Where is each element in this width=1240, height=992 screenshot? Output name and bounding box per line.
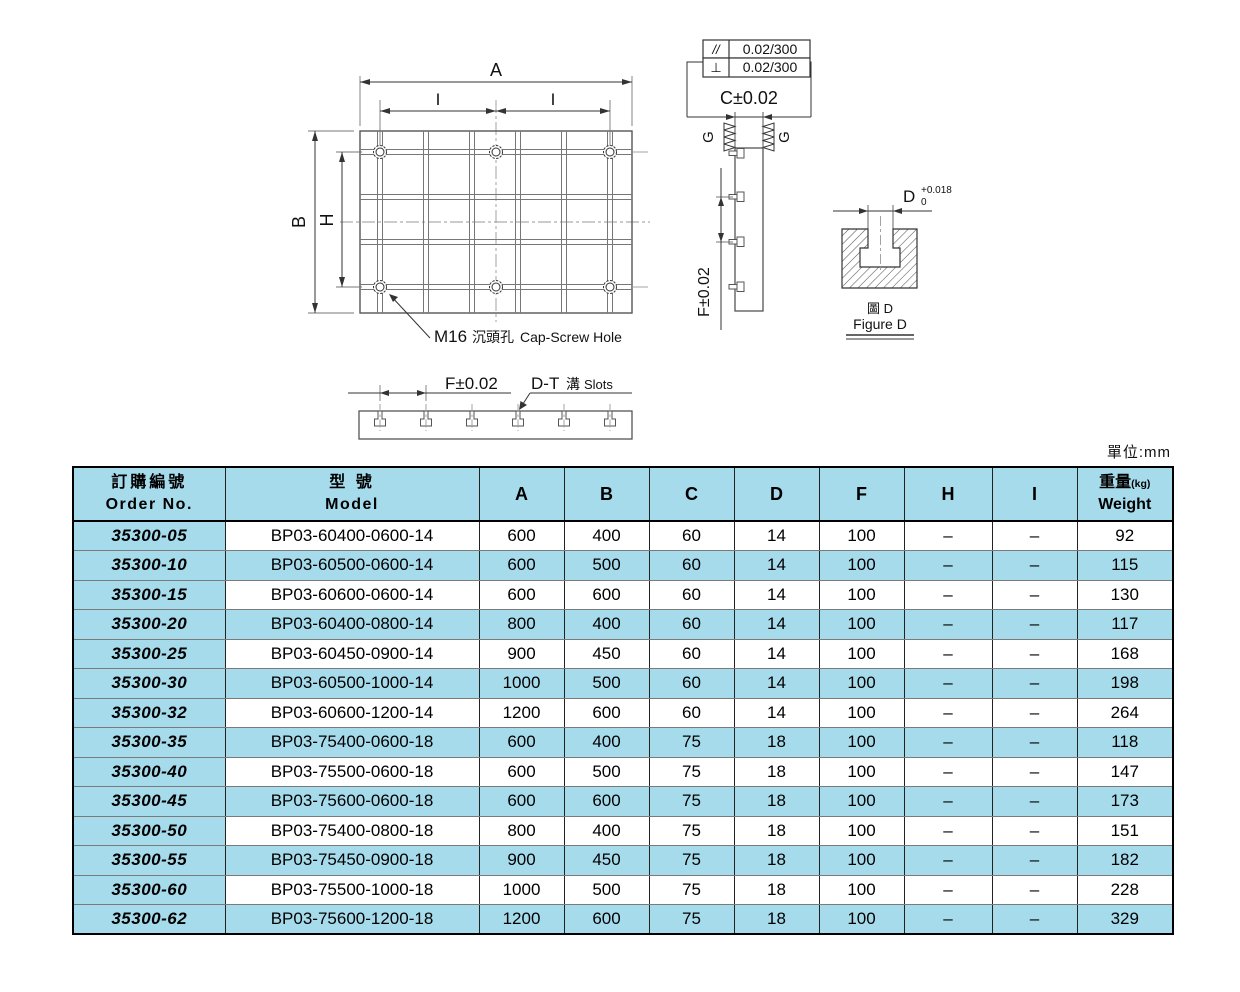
dim-f-cell: 100 <box>819 580 904 610</box>
dim-d-cell: 14 <box>734 580 819 610</box>
dim-d-tol-upper: +0.018 <box>921 185 952 196</box>
cap-screw-holes <box>374 146 617 294</box>
dim-f-cell: 100 <box>819 846 904 876</box>
header-model-cjk: 型 號 <box>226 472 479 494</box>
dim-a-cell: 800 <box>479 816 564 846</box>
header-dim-f: F <box>819 467 904 521</box>
dim-b-cell: 400 <box>564 816 649 846</box>
dim-i-cell: – <box>992 580 1077 610</box>
weight-cell: 117 <box>1077 610 1173 640</box>
dim-f-cell: 100 <box>819 639 904 669</box>
model-cell: BP03-60500-1000-14 <box>225 669 479 699</box>
dim-b-cell: 450 <box>564 639 649 669</box>
dim-c-cell: 75 <box>649 728 734 758</box>
table-row: 35300-10BP03-60500-0600-146005006014100–… <box>73 551 1173 581</box>
perpendicularity-value: 0.02/300 <box>743 59 798 75</box>
figure-d-caption-cjk: 圖 D <box>867 301 893 316</box>
dim-f-cell: 100 <box>819 728 904 758</box>
header-dim-i: I <box>992 467 1077 521</box>
header-dim-a: A <box>479 467 564 521</box>
model-cell: BP03-60400-0800-14 <box>225 610 479 640</box>
order-no-cell: 35300-55 <box>73 846 225 876</box>
order-no-cell: 35300-50 <box>73 816 225 846</box>
header-row: 訂購編號 Order No. 型 號 Model A B C D F H I <box>73 467 1173 521</box>
model-cell: BP03-75400-0800-18 <box>225 816 479 846</box>
dim-d-cell: 14 <box>734 669 819 699</box>
table-row: 35300-20BP03-60400-0800-148004006014100–… <box>73 610 1173 640</box>
dim-i-cell: – <box>992 875 1077 905</box>
table-row: 35300-45BP03-75600-0600-186006007518100–… <box>73 787 1173 817</box>
dim-c-cell: 60 <box>649 580 734 610</box>
dim-d-cell: 18 <box>734 905 819 935</box>
edge-slot-profiles <box>729 149 744 292</box>
header-model-en: Model <box>226 494 479 516</box>
weight-cell: 130 <box>1077 580 1173 610</box>
dim-b-cell: 500 <box>564 551 649 581</box>
dim-h-cell: – <box>904 521 992 551</box>
dim-b-cell: 600 <box>564 787 649 817</box>
table-row: 35300-60BP03-75500-1000-1810005007518100… <box>73 875 1173 905</box>
dim-b-cell: 600 <box>564 580 649 610</box>
dim-b-cell: 400 <box>564 521 649 551</box>
dim-c-cell: 75 <box>649 875 734 905</box>
dim-f-cell: 100 <box>819 757 904 787</box>
dim-f-cell: 100 <box>819 816 904 846</box>
model-cell: BP03-75450-0900-18 <box>225 846 479 876</box>
dim-i1-label: I <box>436 90 441 109</box>
dim-i-cell: – <box>992 669 1077 699</box>
dim-i-cell: – <box>992 757 1077 787</box>
dim-i-cell: – <box>992 787 1077 817</box>
order-no-cell: 35300-10 <box>73 551 225 581</box>
order-no-cell: 35300-40 <box>73 757 225 787</box>
section-view-drawing: F±0.02 D-T 溝 Slots <box>348 374 632 439</box>
dim-i2-label: I <box>551 90 556 109</box>
model-cell: BP03-60600-0600-14 <box>225 580 479 610</box>
dim-c-label: C±0.02 <box>720 88 778 108</box>
weight-cell: 198 <box>1077 669 1173 699</box>
table-row: 35300-05BP03-60400-0600-146004006014100–… <box>73 521 1173 551</box>
order-no-cell: 35300-35 <box>73 728 225 758</box>
header-dim-b: B <box>564 467 649 521</box>
dim-a-cell: 600 <box>479 521 564 551</box>
table-row: 35300-55BP03-75450-0900-189004507518100–… <box>73 846 1173 876</box>
dim-i-cell: – <box>992 551 1077 581</box>
order-no-cell: 35300-62 <box>73 905 225 935</box>
dim-a-cell: 1000 <box>479 875 564 905</box>
dim-a-cell: 600 <box>479 551 564 581</box>
dim-b-cell: 600 <box>564 905 649 935</box>
dim-f-cell: 100 <box>819 875 904 905</box>
dim-c-cell: 75 <box>649 816 734 846</box>
table-row: 35300-40BP03-75500-0600-186005007518100–… <box>73 757 1173 787</box>
dim-h-cell: – <box>904 580 992 610</box>
dim-i-cell: – <box>992 521 1077 551</box>
dim-d-tol-lower: 0 <box>921 197 927 208</box>
dim-h-cell: – <box>904 846 992 876</box>
weight-cell: 92 <box>1077 521 1173 551</box>
table-row: 35300-30BP03-60500-1000-1410005006014100… <box>73 669 1173 699</box>
dim-c-cell: 75 <box>649 787 734 817</box>
dim-d-cell: 14 <box>734 610 819 640</box>
table-row: 35300-25BP03-60450-0900-149004506014100–… <box>73 639 1173 669</box>
weight-cell: 329 <box>1077 905 1173 935</box>
dim-b-cell: 600 <box>564 698 649 728</box>
dim-d-cell: 18 <box>734 846 819 876</box>
dim-f-cell: 100 <box>819 787 904 817</box>
dim-h-label: H <box>317 214 337 227</box>
t-slot-cross-section <box>842 229 917 288</box>
dim-i-cell: – <box>992 846 1077 876</box>
dim-d-cell: 18 <box>734 787 819 817</box>
order-no-cell: 35300-60 <box>73 875 225 905</box>
parallelism-value: 0.02/300 <box>743 41 798 57</box>
dim-h-cell: – <box>904 551 992 581</box>
order-no-cell: 35300-20 <box>73 610 225 640</box>
dim-d-cell: 18 <box>734 728 819 758</box>
slots-note-en: Slots <box>584 377 613 392</box>
header-order-no-en: Order No. <box>74 494 225 516</box>
dim-h-cell: – <box>904 875 992 905</box>
dim-a-cell: 900 <box>479 846 564 876</box>
dim-f-cell: 100 <box>819 669 904 699</box>
section-slots <box>375 411 616 426</box>
header-model: 型 號 Model <box>225 467 479 521</box>
dim-b-cell: 500 <box>564 669 649 699</box>
dim-a-cell: 600 <box>479 728 564 758</box>
weight-cell: 182 <box>1077 846 1173 876</box>
weight-cell: 151 <box>1077 816 1173 846</box>
model-cell: BP03-75500-0600-18 <box>225 757 479 787</box>
table-row: 35300-15BP03-60600-0600-146006006014100–… <box>73 580 1173 610</box>
parallelism-symbol: // <box>711 42 721 57</box>
dim-b-cell: 500 <box>564 757 649 787</box>
dim-c-cell: 60 <box>649 698 734 728</box>
dim-b-cell: 400 <box>564 610 649 640</box>
dim-d-cell: 14 <box>734 521 819 551</box>
weight-cell: 115 <box>1077 551 1173 581</box>
dim-h-cell: – <box>904 639 992 669</box>
dim-d-cell: 14 <box>734 698 819 728</box>
model-cell: BP03-75500-1000-18 <box>225 875 479 905</box>
weight-cell: 264 <box>1077 698 1173 728</box>
dim-a-cell: 1000 <box>479 669 564 699</box>
dim-i-cell: – <box>992 816 1077 846</box>
dim-a-cell: 600 <box>479 757 564 787</box>
dim-b-cell: 400 <box>564 728 649 758</box>
dim-f-section-label: F±0.02 <box>445 374 498 393</box>
figure-d-caption-en: Figure D <box>853 316 907 332</box>
order-no-cell: 35300-45 <box>73 787 225 817</box>
perpendicularity-symbol: ⊥ <box>710 60 721 75</box>
model-cell: BP03-60600-1200-14 <box>225 698 479 728</box>
units-label: 單位:mm <box>1040 441 1171 462</box>
dim-f-cell: 100 <box>819 551 904 581</box>
hole-note-en: Cap-Screw Hole <box>520 329 622 345</box>
model-cell: BP03-75600-0600-18 <box>225 787 479 817</box>
header-dim-h: H <box>904 467 992 521</box>
dim-h-cell: – <box>904 905 992 935</box>
dim-d-cell: 18 <box>734 816 819 846</box>
dim-f-cell: 100 <box>819 610 904 640</box>
figure-d-drawing: D +0.018 0 圖 D Figure D <box>833 185 952 339</box>
dim-b-label: B <box>289 216 309 228</box>
dim-a-cell: 800 <box>479 610 564 640</box>
dim-i-cell: – <box>992 698 1077 728</box>
dim-c-cell: 60 <box>649 610 734 640</box>
finish-g-right: G <box>776 131 793 143</box>
order-no-cell: 35300-25 <box>73 639 225 669</box>
header-dim-c: C <box>649 467 734 521</box>
header-order-no-cjk: 訂購編號 <box>74 472 225 494</box>
header-weight-en: Weight <box>1078 494 1173 516</box>
dim-d-cell: 18 <box>734 875 819 905</box>
slots-note-d: D-T <box>531 374 559 393</box>
dim-f-side-label: F±0.02 <box>696 267 713 317</box>
dim-i-cell: – <box>992 639 1077 669</box>
dim-d-cell: 14 <box>734 551 819 581</box>
header-weight: 重量(kg) Weight <box>1077 467 1173 521</box>
dim-i-cell: – <box>992 728 1077 758</box>
table-row: 35300-35BP03-75400-0600-186004007518100–… <box>73 728 1173 758</box>
weight-cell: 118 <box>1077 728 1173 758</box>
dim-b-cell: 450 <box>564 846 649 876</box>
dim-a-cell: 600 <box>479 787 564 817</box>
header-order-no: 訂購編號 Order No. <box>73 467 225 521</box>
header-dim-d: D <box>734 467 819 521</box>
dim-d-cell: 14 <box>734 639 819 669</box>
weight-cell: 228 <box>1077 875 1173 905</box>
slots-note-cjk: 溝 <box>566 376 580 392</box>
weight-cell: 168 <box>1077 639 1173 669</box>
dim-h-cell: – <box>904 787 992 817</box>
side-view-drawing: // 0.02/300 ⊥ 0.02/300 C±0.02 G G <box>687 40 811 330</box>
table-row: 35300-62BP03-75600-1200-1812006007518100… <box>73 905 1173 935</box>
dim-a-cell: 900 <box>479 639 564 669</box>
weight-cell: 147 <box>1077 757 1173 787</box>
dim-a-cell: 1200 <box>479 905 564 935</box>
plan-view-drawing: A I I B H <box>289 60 650 346</box>
dim-f-cell: 100 <box>819 521 904 551</box>
table-row: 35300-32BP03-60600-1200-1412006006014100… <box>73 698 1173 728</box>
technical-drawing: A I I B H <box>0 0 1240 470</box>
dim-c-cell: 75 <box>649 846 734 876</box>
hole-note-cjk: 沉頭孔 <box>472 329 514 345</box>
finish-g-left: G <box>700 131 717 143</box>
table-row: 35300-50BP03-75400-0800-188004007518100–… <box>73 816 1173 846</box>
order-no-cell: 35300-15 <box>73 580 225 610</box>
dim-h-cell: – <box>904 728 992 758</box>
order-no-cell: 35300-30 <box>73 669 225 699</box>
dim-h-cell: – <box>904 757 992 787</box>
dim-f-cell: 100 <box>819 905 904 935</box>
dim-h-cell: – <box>904 698 992 728</box>
weight-cell: 173 <box>1077 787 1173 817</box>
dim-i-cell: – <box>992 610 1077 640</box>
dim-d-label: D <box>903 187 915 206</box>
surface-finish-marks <box>724 123 774 151</box>
dim-f-cell: 100 <box>819 698 904 728</box>
catalog-page: A I I B H <box>0 0 1240 992</box>
tolerance-frames: // 0.02/300 ⊥ 0.02/300 <box>703 40 810 77</box>
order-no-cell: 35300-32 <box>73 698 225 728</box>
dim-i-cell: – <box>992 905 1077 935</box>
dim-h-cell: – <box>904 669 992 699</box>
dim-c-cell: 75 <box>649 757 734 787</box>
dim-b-cell: 500 <box>564 875 649 905</box>
model-cell: BP03-60450-0900-14 <box>225 639 479 669</box>
dim-h-cell: – <box>904 610 992 640</box>
dim-c-cell: 60 <box>649 521 734 551</box>
order-no-cell: 35300-05 <box>73 521 225 551</box>
dim-c-cell: 60 <box>649 551 734 581</box>
dim-d-cell: 18 <box>734 757 819 787</box>
model-cell: BP03-75400-0600-18 <box>225 728 479 758</box>
dim-a-cell: 600 <box>479 580 564 610</box>
model-cell: BP03-60400-0600-14 <box>225 521 479 551</box>
dim-c-cell: 60 <box>649 669 734 699</box>
spec-table-body: 35300-05BP03-60400-0600-146004006014100–… <box>73 521 1173 934</box>
dim-c-cell: 75 <box>649 905 734 935</box>
hole-note-m16: M16 <box>434 327 467 346</box>
header-weight-unit: (kg) <box>1131 478 1150 490</box>
dim-a-label: A <box>490 60 502 80</box>
dim-a-cell: 1200 <box>479 698 564 728</box>
dim-h-cell: – <box>904 816 992 846</box>
spec-table: 訂購編號 Order No. 型 號 Model A B C D F H I <box>72 466 1174 935</box>
header-weight-cjk: 重量 <box>1099 474 1131 491</box>
dim-c-cell: 60 <box>649 639 734 669</box>
model-cell: BP03-60500-0600-14 <box>225 551 479 581</box>
model-cell: BP03-75600-1200-18 <box>225 905 479 935</box>
